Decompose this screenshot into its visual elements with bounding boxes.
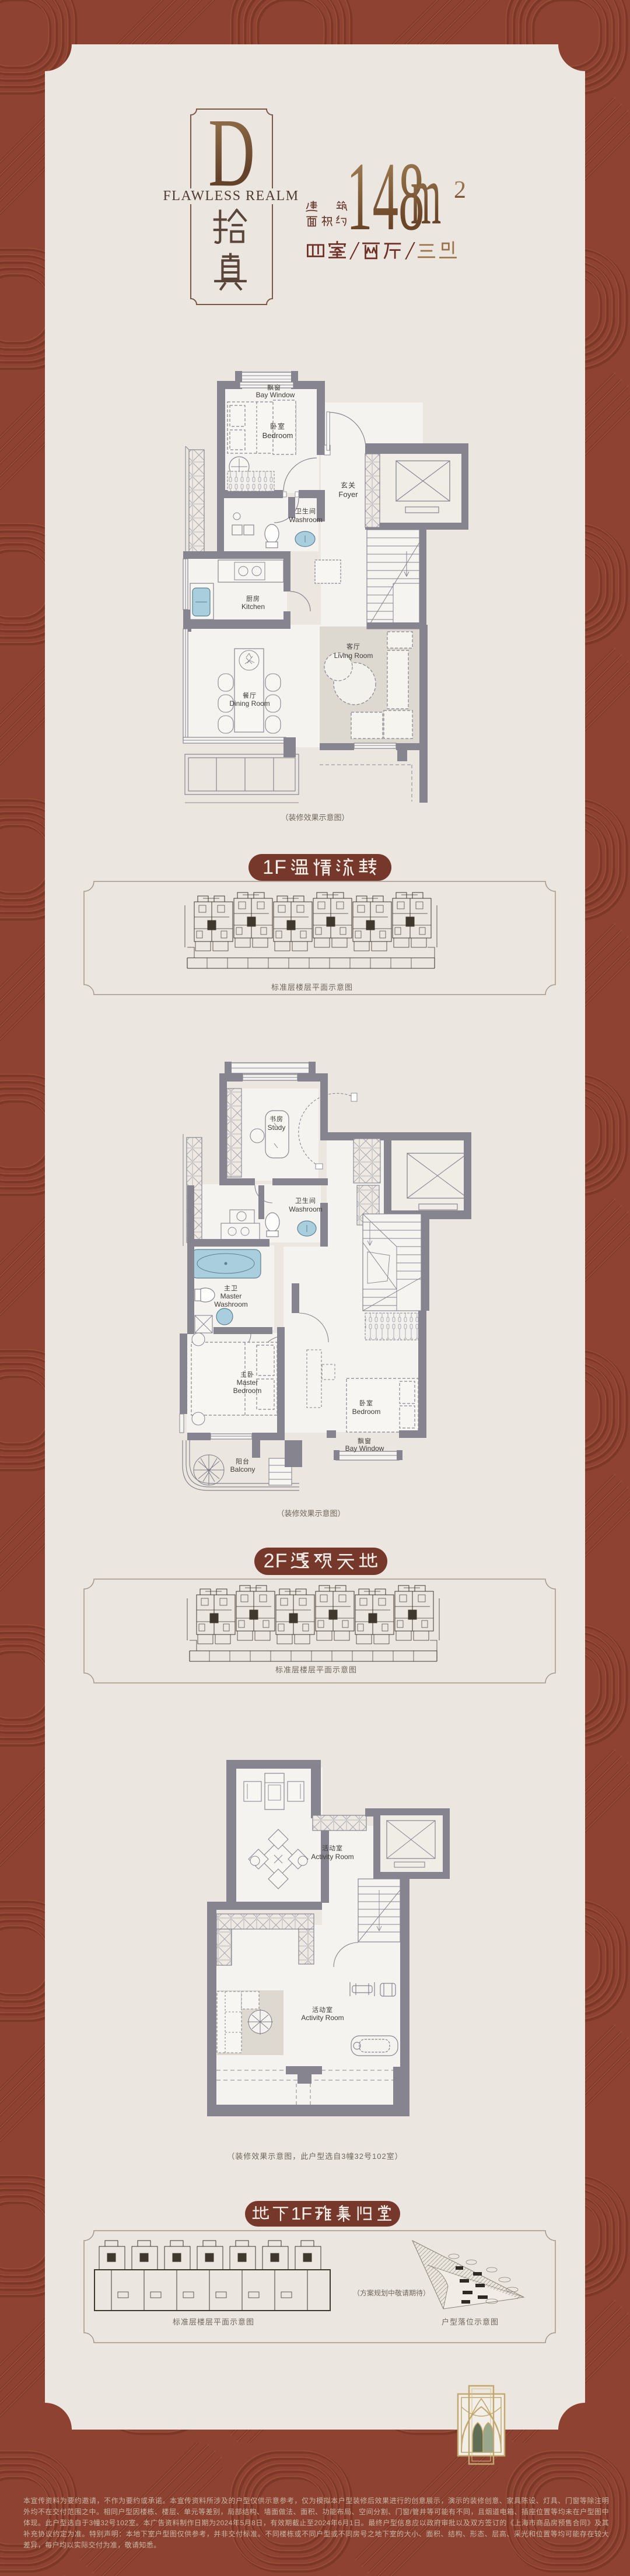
- svg-text:主卧: 主卧: [240, 1371, 254, 1378]
- svg-text:Foyer: Foyer: [338, 490, 358, 499]
- svg-text:（方案规划中敬请期待）: （方案规划中敬请期待）: [353, 2288, 430, 2297]
- svg-text:Bedroom: Bedroom: [233, 1387, 262, 1395]
- svg-text:Master: Master: [237, 1378, 258, 1387]
- svg-text:书房: 书房: [269, 1115, 283, 1123]
- svg-text:Kitchen: Kitchen: [242, 603, 265, 611]
- svg-text:Washroom: Washroom: [289, 516, 323, 524]
- svg-text:Study: Study: [268, 1123, 286, 1132]
- svg-text:标准层楼层平面示意图: 标准层楼层平面示意图: [271, 983, 353, 992]
- svg-text:标准层楼层平面示意图: 标准层楼层平面示意图: [275, 1665, 357, 1674]
- svg-text:客厅: 客厅: [346, 642, 360, 650]
- svg-text:卧室: 卧室: [359, 1399, 373, 1407]
- svg-text:Bay Window: Bay Window: [256, 391, 295, 399]
- svg-text:卫生间: 卫生间: [295, 1196, 316, 1205]
- svg-text:玄关: 玄关: [341, 481, 356, 489]
- svg-text:Washroom: Washroom: [289, 1205, 323, 1213]
- svg-text:Master: Master: [220, 1292, 242, 1300]
- svg-text:Bedroom: Bedroom: [352, 1408, 381, 1416]
- svg-text:Bedroom: Bedroom: [262, 431, 293, 440]
- svg-text:Balcony: Balcony: [230, 1465, 256, 1473]
- svg-text:Washroom: Washroom: [214, 1300, 248, 1308]
- svg-text:阳台: 阳台: [236, 1457, 250, 1465]
- svg-text:户型落位示意图: 户型落位示意图: [442, 2318, 499, 2326]
- svg-text:Dining Room: Dining Room: [229, 699, 269, 708]
- svg-text:Bay Window: Bay Window: [345, 1444, 384, 1452]
- svg-text:飘窗: 飘窗: [267, 383, 281, 391]
- svg-text:Activity Room: Activity Room: [301, 2014, 344, 2022]
- svg-text:活动室: 活动室: [322, 1844, 343, 1852]
- svg-text:餐厅: 餐厅: [243, 691, 257, 699]
- svg-text:标准层楼层平面示意图: 标准层楼层平面示意图: [173, 2318, 254, 2326]
- svg-text:Living Room: Living Room: [334, 652, 373, 660]
- svg-text:卫生间: 卫生间: [295, 507, 316, 515]
- svg-text:活动室: 活动室: [312, 2006, 333, 2014]
- svg-text:卧室: 卧室: [270, 422, 285, 430]
- svg-text:主卫: 主卫: [224, 1284, 238, 1292]
- svg-text:飘窗: 飘窗: [358, 1437, 372, 1445]
- svg-text:厨房: 厨房: [246, 595, 260, 603]
- svg-text:Activity Room: Activity Room: [311, 1853, 353, 1861]
